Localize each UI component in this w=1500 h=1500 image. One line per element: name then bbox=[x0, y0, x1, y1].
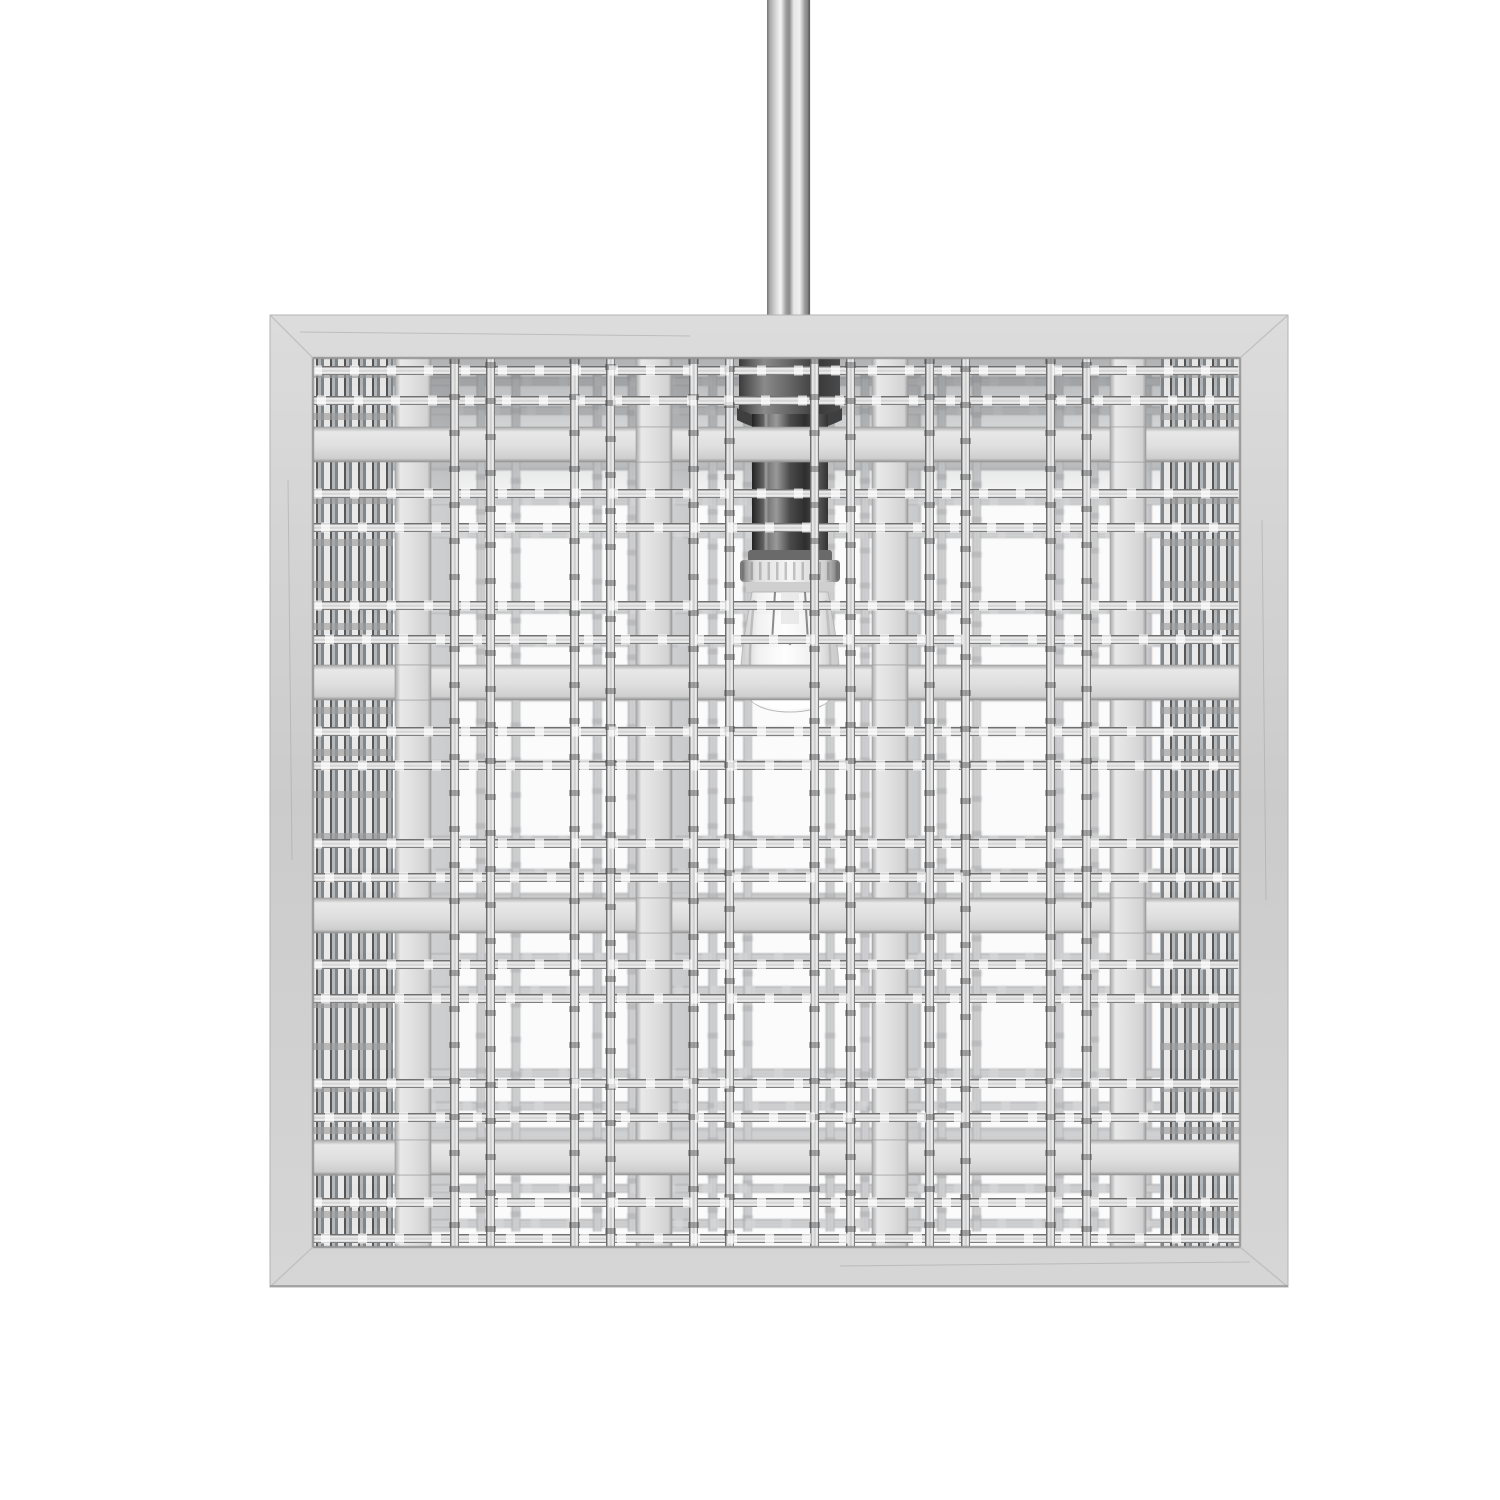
pendant-rod bbox=[767, 0, 810, 330]
product-photo: Brushed nickel square woven-cage pendant… bbox=[0, 0, 1500, 1500]
product-photo-canvas: Brushed nickel square woven-cage pendant… bbox=[0, 0, 1500, 1500]
socket-knurled-ring bbox=[740, 560, 840, 582]
lamp-socket bbox=[737, 358, 842, 592]
